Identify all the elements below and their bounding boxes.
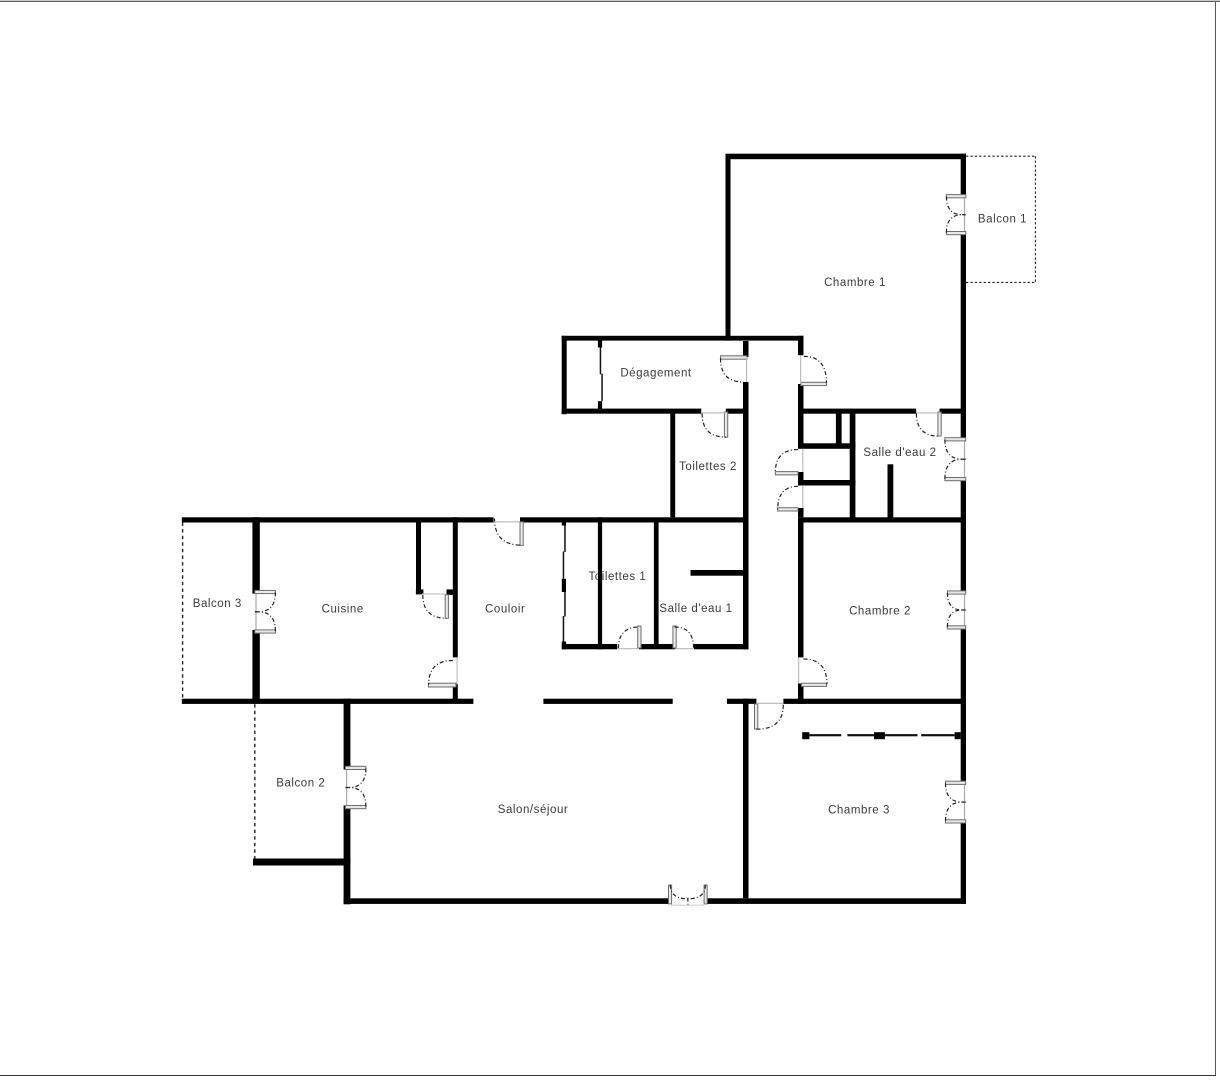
svg-text:Cuisine: Cuisine (322, 603, 364, 615)
svg-text:Toilettes 1: Toilettes 1 (588, 571, 646, 583)
svg-text:Couloir: Couloir (485, 604, 525, 616)
svg-text:Chambre 2: Chambre 2 (849, 605, 911, 617)
svg-text:Balcon 3: Balcon 3 (193, 598, 242, 610)
svg-text:Salon/séjour: Salon/séjour (498, 804, 569, 816)
svg-text:Dégagement: Dégagement (620, 367, 692, 379)
svg-text:Chambre 1: Chambre 1 (824, 277, 886, 289)
svg-text:Salle d'eau 1: Salle d'eau 1 (659, 603, 732, 615)
svg-text:Balcon 1: Balcon 1 (978, 213, 1027, 225)
svg-text:Salle d'eau 2: Salle d'eau 2 (863, 447, 936, 459)
svg-text:Chambre 3: Chambre 3 (828, 804, 890, 816)
svg-text:Balcon 2: Balcon 2 (276, 777, 325, 789)
svg-text:Toilettes 2: Toilettes 2 (679, 461, 737, 473)
